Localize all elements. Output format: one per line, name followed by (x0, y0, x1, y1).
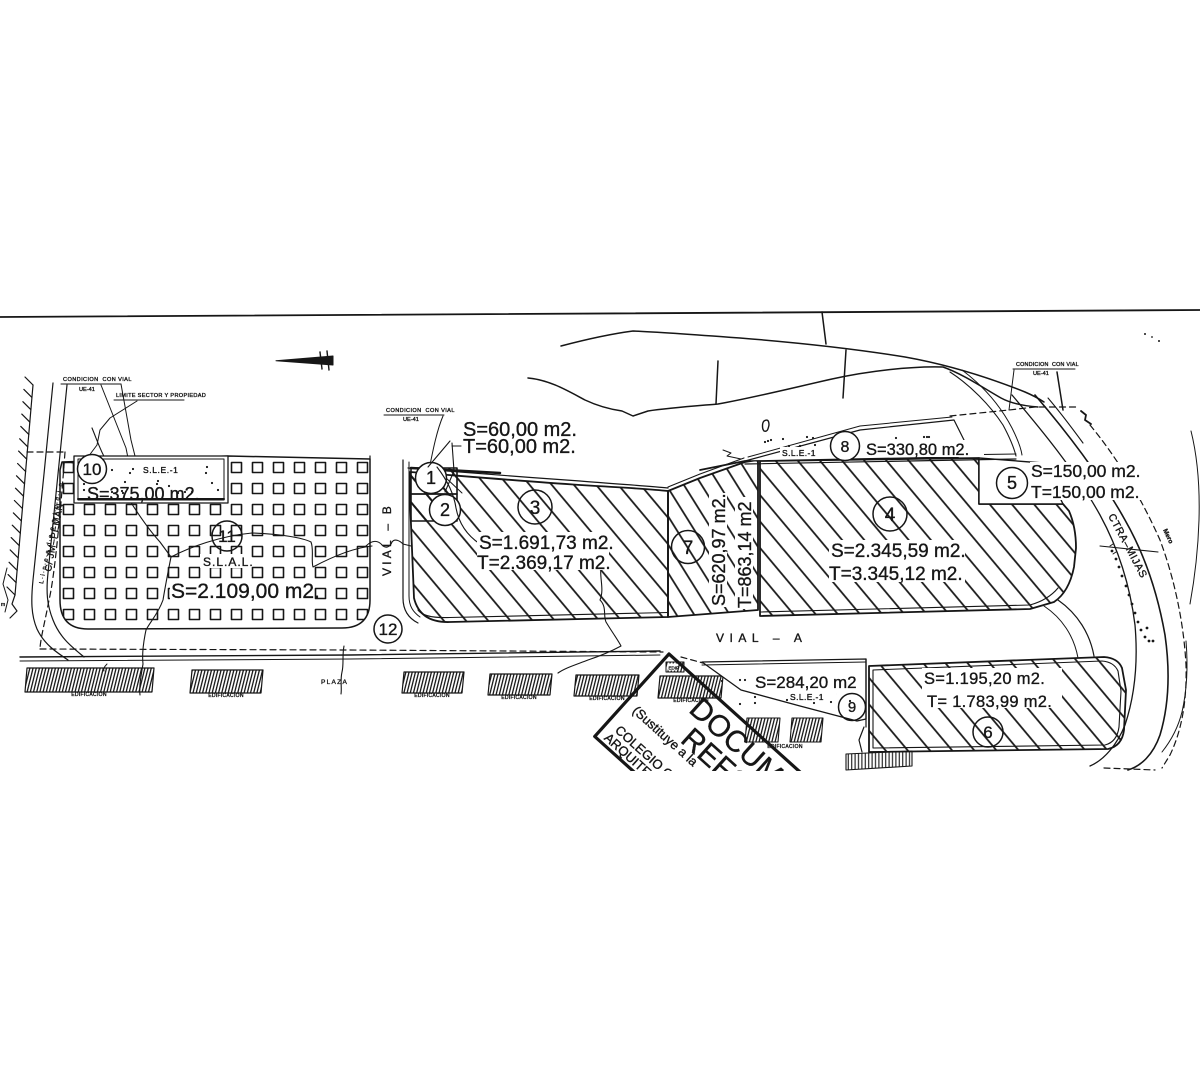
svg-text:S=1.195,20 m2.: S=1.195,20 m2. (924, 670, 1045, 688)
svg-text:S.L.E.-1: S.L.E.-1 (143, 465, 179, 475)
svg-text:EDIFICACION: EDIFICACION (501, 695, 537, 701)
svg-text:6: 6 (983, 723, 992, 742)
svg-text:7: 7 (683, 538, 694, 559)
svg-text:UE-41: UE-41 (79, 387, 95, 393)
svg-text:5: 5 (1007, 473, 1017, 493)
svg-text:S=375,00 m2.: S=375,00 m2. (87, 484, 200, 504)
svg-text:S=150,00 m2.: S=150,00 m2. (1031, 461, 1140, 481)
svg-text:EDIFICACION: EDIFICACION (208, 693, 244, 699)
svg-text:S=330,80 m2.: S=330,80 m2. (866, 441, 969, 459)
svg-text:UE-41: UE-41 (403, 417, 419, 423)
svg-text:LIMITE SECTOR Y PROPIEDAD: LIMITE SECTOR Y PROPIEDAD (116, 393, 206, 399)
svg-text:UE-41: UE-41 (1033, 371, 1049, 377)
svg-text:10: 10 (83, 460, 102, 479)
svg-text:m: m (1, 602, 5, 608)
svg-text:S=1.691,73 m2.: S=1.691,73 m2. (479, 533, 614, 554)
svg-text:1: 1 (426, 468, 436, 488)
svg-text:T= 1.783,99 m2.: T= 1.783,99 m2. (927, 693, 1052, 711)
svg-text:11: 11 (218, 527, 236, 546)
svg-text:T=863,14 m2: T=863,14 m2 (735, 501, 755, 608)
svg-text:S=284,20 m2: S=284,20 m2 (755, 673, 857, 692)
svg-text:CONDICION CON VIAL: CONDICION CON VIAL (63, 377, 132, 383)
svg-text:S.L.E.-1: S.L.E.-1 (782, 448, 816, 458)
svg-text:9: 9 (848, 699, 856, 716)
svg-text:T=60,00 m2.: T=60,00 m2. (463, 436, 576, 458)
svg-text:T=3.345,12 m2.: T=3.345,12 m2. (829, 564, 963, 585)
svg-text:CONDICION CON VIAL: CONDICION CON VIAL (386, 408, 455, 414)
svg-text:S.L.E.-1: S.L.E.-1 (790, 692, 824, 702)
svg-text:4: 4 (885, 505, 896, 526)
svg-text:EDIFICACION: EDIFICACION (589, 696, 625, 702)
svg-text:S=620,97 m2.: S=620,97 m2. (709, 493, 729, 606)
svg-text:S=2.345,59 m2.: S=2.345,59 m2. (831, 541, 966, 562)
svg-text:T=150,00 m2.: T=150,00 m2. (1031, 482, 1139, 502)
svg-text:3: 3 (530, 498, 541, 519)
svg-text:12: 12 (379, 620, 398, 639)
svg-text:8: 8 (841, 439, 850, 456)
svg-text:T=2.369,17 m2.: T=2.369,17 m2. (477, 553, 611, 574)
svg-text:S=2.109,00 m2.: S=2.109,00 m2. (171, 580, 320, 603)
svg-text:VIAL – B: VIAL – B (380, 503, 394, 576)
svg-text:EDIF: EDIF (669, 666, 680, 671)
svg-text:S.L.A.L.: S.L.A.L. (203, 555, 254, 569)
svg-text:2: 2 (440, 500, 450, 520)
svg-text:VIAL – A: VIAL – A (716, 631, 807, 645)
svg-text:PLAZA: PLAZA (321, 679, 348, 686)
svg-text:CONDICION CON VIAL: CONDICION CON VIAL (1016, 362, 1079, 368)
svg-text:EDIFICACION: EDIFICACION (71, 692, 107, 698)
svg-text:EDIFICACION: EDIFICACION (414, 693, 450, 699)
